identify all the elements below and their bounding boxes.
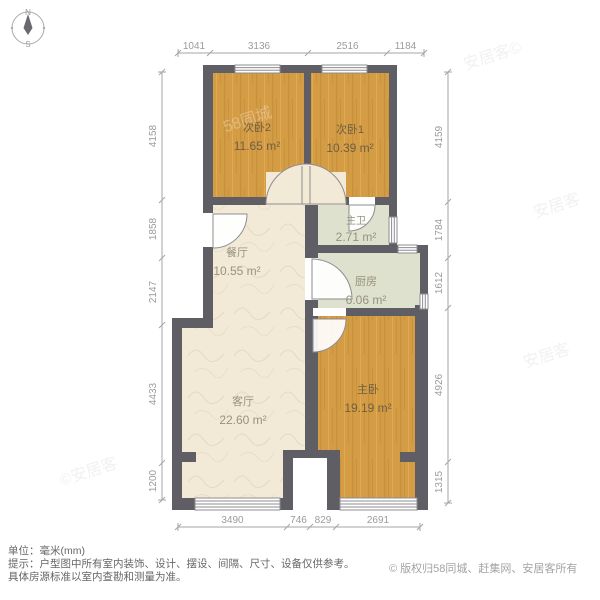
dim-right-1: 1784	[434, 218, 445, 241]
room-master-label: 主卧	[357, 383, 379, 396]
wall-master-stub	[400, 452, 415, 462]
window-bath	[389, 217, 397, 243]
dim-right-3: 4926	[434, 373, 445, 396]
dim-bottom-3: 2691	[367, 515, 390, 526]
room-kitchen-area: 6.06 m²	[346, 293, 387, 307]
window-master-bottom	[340, 498, 417, 510]
dim-left-1: 1858	[148, 217, 159, 240]
dim-right-2: 1612	[434, 271, 445, 294]
unit-note: 单位：毫米(mm)	[8, 545, 85, 558]
dim-left-4: 1200	[148, 469, 159, 492]
dim-bottom-1: 746	[290, 515, 307, 526]
room-kitchen-label: 厨房	[355, 275, 377, 288]
room-living-label: 客厅	[232, 394, 254, 408]
wall-left-living	[172, 318, 182, 510]
dim-top-3: 1184	[395, 41, 417, 52]
wall-left-upper	[203, 65, 213, 328]
room-bed2-area: 11.65 m²	[234, 139, 280, 153]
dim-left-0: 4158	[148, 124, 159, 147]
floor-plan-page: 次卧2 11.65 m² 次卧1 10.39 m² 主卫 2.71 m² 餐厅 …	[0, 0, 600, 600]
tip-note-2: 具体房源标准以室内查勘和测量为准。	[8, 571, 187, 584]
room-floors	[182, 73, 420, 498]
entry-notch	[293, 458, 327, 510]
room-living-area: 22.60 m²	[219, 413, 266, 427]
wall-top	[203, 65, 397, 73]
dim-right-4: 1315	[434, 470, 445, 493]
window-kitchen-top	[398, 245, 417, 253]
dim-bottom-2: 829	[315, 515, 332, 526]
tip-note-1: 提示：户型图中所有室内装饰、设计、摆设、间隔、尺寸、设备仅供参考。	[8, 558, 355, 571]
room-bed1-area: 10.39 m²	[326, 141, 373, 155]
window-bed2	[235, 65, 280, 73]
window-living-bottom	[195, 498, 280, 510]
room-bed1-label: 次卧1	[336, 122, 364, 136]
dim-top-1: 3136	[248, 41, 271, 52]
window-kitchen-right	[420, 294, 428, 309]
wall-left-stub	[182, 452, 196, 462]
dim-right-0: 4159	[434, 125, 445, 148]
dim-top-0: 1041	[183, 41, 206, 52]
room-master-area: 19.19 m²	[344, 401, 391, 415]
window-bed1	[322, 65, 367, 73]
dim-top-2: 2516	[336, 41, 359, 52]
bath-door-opening	[349, 197, 375, 205]
room-dining-area: 10.55 m²	[213, 264, 260, 278]
compass-north-label: N	[25, 8, 31, 17]
dim-bottom-0: 3490	[221, 515, 244, 526]
compass-south-label: S	[25, 40, 30, 49]
wall-master-right	[415, 305, 428, 508]
compass-icon: N S	[11, 8, 45, 49]
compass-needle	[24, 14, 33, 35]
dim-left-2: 2147	[148, 280, 159, 303]
room-bath-area: 2.71 m²	[336, 230, 377, 244]
wall-notch-left	[283, 450, 293, 510]
master-door-opening	[313, 308, 346, 316]
copyright-note: © 版权归58同城、赶集网、安居客所有	[389, 560, 577, 576]
room-dining-label: 餐厅	[226, 245, 248, 259]
floor-plan-svg: 次卧2 11.65 m² 次卧1 10.39 m² 主卫 2.71 m² 餐厅 …	[0, 0, 600, 600]
dim-left-3: 4433	[148, 382, 159, 405]
room-bath-label: 主卫	[346, 215, 366, 227]
entry-door-opening	[203, 213, 213, 247]
